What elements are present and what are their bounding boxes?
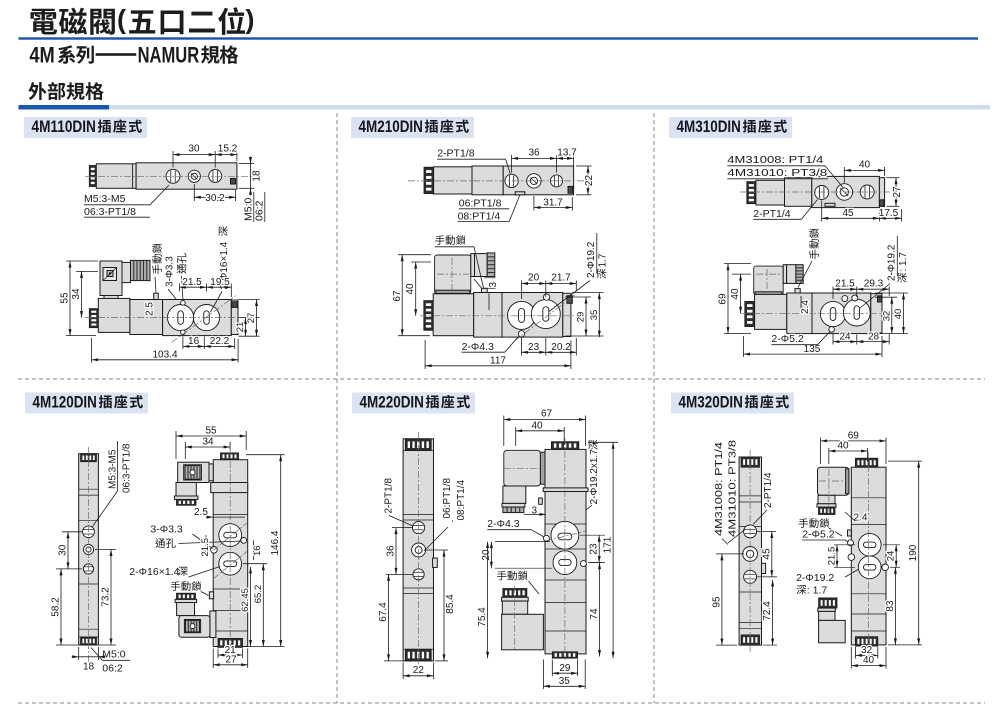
svg-text:4M: 4M: [29, 42, 54, 67]
svg-text:1.7: 1.7: [598, 253, 609, 267]
svg-text:: 1.7: : 1.7: [807, 585, 828, 597]
svg-text:40: 40: [859, 159, 871, 170]
svg-text:4M31008: PT1/4: 4M31008: PT1/4: [727, 154, 823, 166]
svg-text:4M120DIN: 4M120DIN: [33, 393, 97, 412]
svg-text:21: 21: [235, 322, 246, 333]
svg-text:4M320DIN: 4M320DIN: [679, 393, 743, 412]
svg-text:45: 45: [761, 548, 772, 560]
svg-text:20: 20: [528, 272, 540, 283]
svg-text:29.3: 29.3: [864, 278, 884, 289]
svg-text:06:2: 06:2: [254, 200, 266, 221]
svg-text:27: 27: [225, 655, 237, 666]
svg-text:15.2: 15.2: [218, 144, 238, 155]
svg-text:3: 3: [532, 506, 538, 517]
svg-text:28: 28: [868, 331, 880, 342]
svg-text:08:PT1/4: 08:PT1/4: [458, 210, 501, 222]
svg-text:55: 55: [60, 292, 71, 304]
svg-text:45: 45: [842, 208, 854, 219]
svg-text:M5:0: M5:0: [102, 649, 126, 661]
svg-text:3-Φ3.3: 3-Φ3.3: [150, 524, 182, 536]
svg-text:40: 40: [531, 420, 543, 431]
svg-text:58.2: 58.2: [51, 597, 62, 617]
svg-text:13.7: 13.7: [557, 147, 577, 158]
svg-text:4M220DIN: 4M220DIN: [360, 393, 424, 412]
svg-text:69: 69: [848, 430, 860, 441]
svg-text:83: 83: [885, 600, 896, 612]
svg-text:24: 24: [886, 551, 897, 562]
svg-text:85.4: 85.4: [445, 594, 456, 614]
svg-text:06:3-PT1/8: 06:3-PT1/8: [84, 206, 136, 218]
svg-text:35: 35: [589, 310, 600, 321]
svg-text:34: 34: [71, 288, 82, 300]
svg-text:16: 16: [252, 545, 263, 556]
svg-text:40: 40: [863, 655, 875, 666]
svg-text:23: 23: [528, 342, 540, 353]
svg-text:69: 69: [718, 293, 729, 305]
svg-text:29: 29: [576, 312, 587, 323]
svg-text:18: 18: [252, 170, 263, 182]
svg-text:16: 16: [188, 336, 200, 347]
svg-text:2.5: 2.5: [194, 507, 208, 518]
svg-text:27: 27: [246, 313, 257, 324]
svg-text:22.2: 22.2: [210, 336, 230, 347]
svg-text:06:PT1/8: 06:PT1/8: [459, 197, 502, 209]
svg-text:2.4: 2.4: [854, 513, 868, 524]
svg-text:117: 117: [490, 356, 506, 367]
svg-text:2.5: 2.5: [145, 302, 156, 316]
svg-text:2-PT1/4: 2-PT1/4: [763, 472, 774, 508]
svg-text:36: 36: [528, 147, 540, 158]
svg-text:40: 40: [837, 441, 849, 452]
svg-text:2-Φ4.3: 2-Φ4.3: [462, 341, 494, 353]
svg-text:55: 55: [205, 426, 217, 437]
svg-text:: 1.7: : 1.7: [898, 252, 909, 272]
svg-text:06:PT1/8: 06:PT1/8: [442, 477, 453, 518]
svg-text:M5:3-M5: M5:3-M5: [84, 193, 126, 205]
svg-text:2-PT1/4: 2-PT1/4: [753, 208, 791, 220]
svg-text:67.4: 67.4: [378, 602, 389, 622]
svg-text:2-Φ4.3: 2-Φ4.3: [487, 518, 519, 530]
svg-text:2-Φ19.2: 2-Φ19.2: [887, 244, 898, 281]
svg-text:30.2: 30.2: [205, 193, 225, 204]
svg-text:20: 20: [481, 549, 492, 561]
svg-text:35: 35: [559, 676, 571, 687]
svg-text:2-Φ16×1.4: 2-Φ16×1.4: [129, 566, 179, 578]
svg-text:): ): [246, 4, 255, 34]
svg-text:40: 40: [730, 288, 741, 300]
svg-text:24: 24: [839, 331, 851, 342]
svg-text:103.4: 103.4: [152, 350, 177, 361]
svg-text:06:2: 06:2: [102, 663, 123, 675]
svg-text:2-Φ19.2x1.7: 2-Φ19.2x1.7: [589, 449, 600, 505]
svg-text:135: 135: [804, 344, 821, 355]
svg-text:72.4: 72.4: [762, 601, 773, 621]
svg-text:4M310DIN: 4M310DIN: [677, 117, 741, 136]
svg-text:29: 29: [559, 663, 571, 674]
svg-text:22: 22: [413, 665, 425, 676]
svg-text:21.5: 21.5: [835, 278, 855, 289]
svg-text:75.4: 75.4: [477, 607, 488, 627]
svg-text:74: 74: [589, 608, 600, 620]
svg-text:32: 32: [881, 311, 892, 322]
svg-text:67: 67: [541, 409, 553, 420]
svg-text:40: 40: [893, 309, 904, 320]
svg-text:2-PT1/8: 2-PT1/8: [437, 148, 475, 160]
svg-text:190: 190: [908, 544, 919, 561]
svg-text:2-Φ19.2: 2-Φ19.2: [796, 572, 834, 584]
svg-text:23: 23: [589, 543, 600, 555]
svg-text:95: 95: [711, 596, 722, 608]
svg-text:4M31010: PT3/8: 4M31010: PT3/8: [727, 167, 827, 179]
svg-text:30: 30: [58, 544, 69, 556]
svg-text:18: 18: [83, 662, 95, 673]
svg-text:19.5: 19.5: [210, 277, 230, 288]
svg-text:(: (: [117, 4, 126, 34]
svg-text:2-Φ19.2: 2-Φ19.2: [586, 241, 597, 278]
svg-text:2-Φ5.2: 2-Φ5.2: [802, 529, 834, 541]
svg-text:171: 171: [603, 536, 614, 553]
svg-text:31.7: 31.7: [543, 197, 563, 208]
svg-text:27: 27: [892, 186, 903, 198]
svg-text:73.2: 73.2: [101, 587, 112, 607]
svg-text:22: 22: [584, 175, 595, 187]
svg-text:40: 40: [405, 283, 416, 295]
svg-text:4M31008: PT1/4: 4M31008: PT1/4: [714, 441, 725, 536]
svg-text:67: 67: [392, 290, 403, 302]
svg-text:M5:3-M5: M5:3-M5: [108, 449, 119, 489]
svg-text:65.2: 65.2: [253, 585, 264, 604]
svg-text:2.4: 2.4: [800, 300, 811, 314]
svg-text:3-Φ3.3: 3-Φ3.3: [165, 256, 176, 287]
svg-text:17.5: 17.5: [879, 208, 899, 219]
svg-text:2-Φ5.2: 2-Φ5.2: [771, 333, 803, 345]
svg-text:NAMUR: NAMUR: [138, 42, 200, 67]
svg-text:3: 3: [488, 282, 499, 288]
svg-text:4M31010: PT3/8: 4M31010: PT3/8: [728, 439, 739, 537]
svg-text:4M110DIN: 4M110DIN: [32, 117, 96, 136]
svg-text:21.7: 21.7: [551, 272, 571, 283]
svg-text:62.45: 62.45: [240, 588, 251, 612]
svg-text:146.4: 146.4: [270, 530, 281, 555]
svg-text:21.5: 21.5: [827, 547, 838, 566]
svg-text:21.5: 21.5: [182, 277, 202, 288]
svg-text:36: 36: [386, 545, 397, 557]
svg-text:2-PT1/8: 2-PT1/8: [384, 477, 395, 513]
svg-text:4M210DIN: 4M210DIN: [359, 117, 423, 136]
svg-text:21.5: 21.5: [200, 538, 211, 557]
svg-text:06:3-PT1/8: 06:3-PT1/8: [122, 443, 133, 493]
svg-text:20.2: 20.2: [551, 342, 571, 353]
svg-text:34: 34: [202, 437, 214, 448]
svg-text:30: 30: [188, 144, 200, 155]
svg-text:08:PT1/4: 08:PT1/4: [456, 479, 467, 520]
